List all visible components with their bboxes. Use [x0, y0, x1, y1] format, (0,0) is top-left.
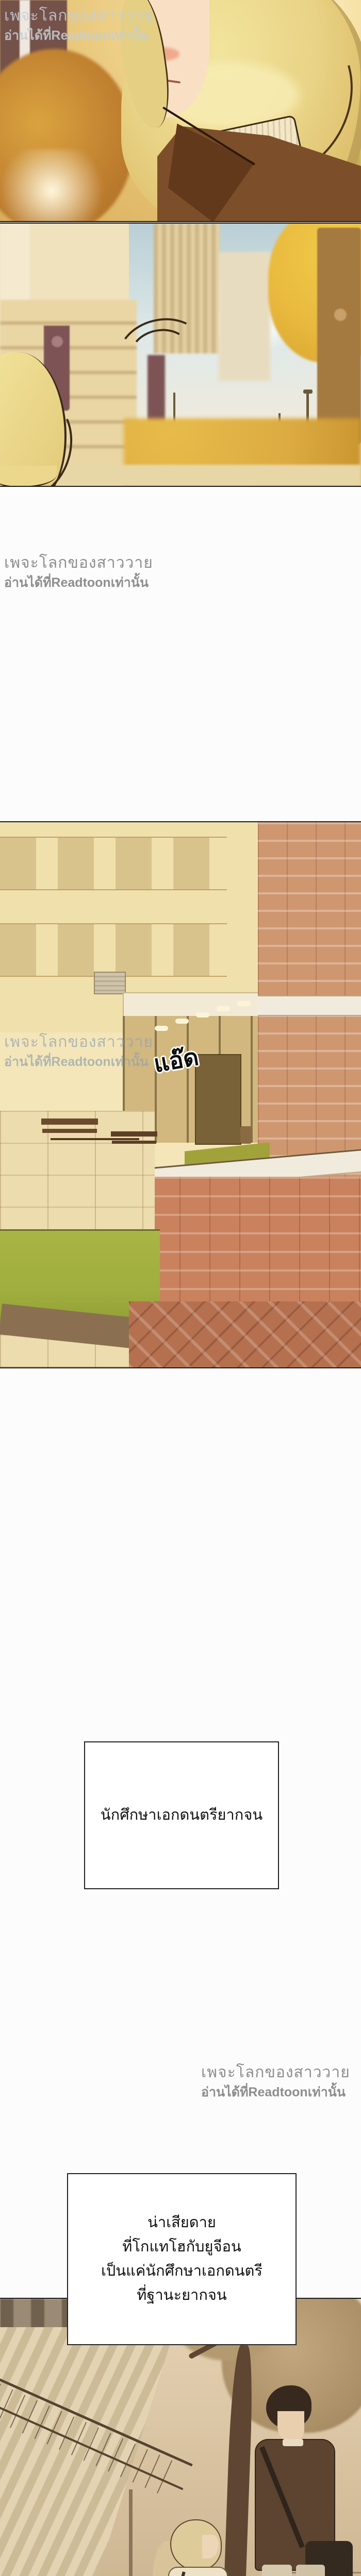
narration-box-2: น่าเสียดาย ที่โกแทโฮกับยูจีอน เป็นแค่นัก…	[67, 2173, 297, 2345]
window-band	[0, 837, 227, 890]
ac-unit	[94, 972, 126, 994]
man-pants	[296, 2565, 325, 2576]
entrance-fascia	[123, 992, 261, 1018]
lamp-pole	[129, 2489, 133, 2576]
watermark-line1: เพจะโลกของสาววาย	[4, 552, 153, 574]
picnic-table	[111, 1131, 157, 1137]
watermark: เพจะโลกของสาววาย อ่านได้ที่Readtoonเท่าน…	[201, 2062, 350, 2101]
man-collar	[283, 2439, 303, 2446]
watermark-line1: เพจะโลกของสาววาย	[201, 2062, 350, 2083]
woman-body-sweater	[168, 2567, 228, 2576]
sign-logo	[334, 309, 347, 321]
stone-band	[258, 995, 361, 1016]
narration-line: ที่โกแทโฮกับยูจีอน	[122, 2235, 241, 2259]
narration-box-1: นักศึกษาเอกดนตรียากจน	[84, 1741, 279, 1889]
banner-logo	[52, 336, 63, 347]
panel-1-portrait	[0, 0, 361, 222]
sign-board-right	[317, 228, 361, 444]
herringbone-floor	[129, 1301, 361, 1367]
entrance-door	[195, 1054, 241, 1145]
watermark-line2: อ่านได้ที่Readtoonเท่านั้น	[201, 2083, 350, 2101]
ceiling-light	[155, 1026, 168, 1031]
light-glow	[0, 149, 113, 222]
panel-2-campus	[0, 223, 361, 487]
window-band	[0, 923, 227, 977]
far-building	[219, 252, 270, 381]
lamp-head	[303, 389, 313, 394]
watermark-line2: อ่านได้ที่Readtoonเท่านั้น	[4, 574, 153, 591]
wall-lamp	[240, 1126, 252, 1144]
narration-line: น่าเสียดาย	[147, 2211, 216, 2235]
man-face	[277, 2411, 304, 2443]
narration-line: เป็นแค่นักศึกษาเอกดนตรี	[101, 2259, 262, 2283]
narration-line: ที่ฐานะยากจน	[137, 2283, 226, 2308]
panel-3-courtyard	[0, 821, 361, 1368]
man-pants	[262, 2565, 292, 2576]
sfx-door-creak: แอ๊ด	[151, 1038, 202, 1083]
watermark: เพจะโลกของสาววาย อ่านได้ที่Readtoonเท่าน…	[4, 552, 153, 591]
picnic-table	[41, 1118, 98, 1125]
narration-line: นักศึกษาเอกดนตรียากจน	[101, 1803, 262, 1827]
webtoon-page: เพจะโลกของสาววาย อ่านได้ที่Readtoonเท่าน…	[0, 0, 361, 2576]
